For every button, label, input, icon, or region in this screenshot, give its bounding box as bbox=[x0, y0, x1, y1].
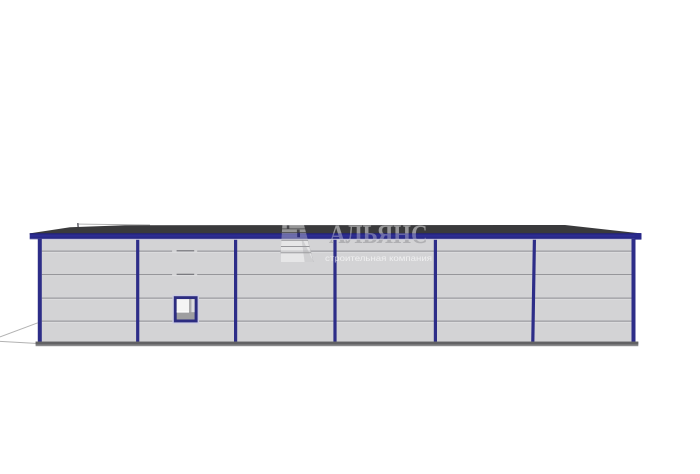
svg-text:строительная компания: строительная компания bbox=[325, 253, 432, 263]
